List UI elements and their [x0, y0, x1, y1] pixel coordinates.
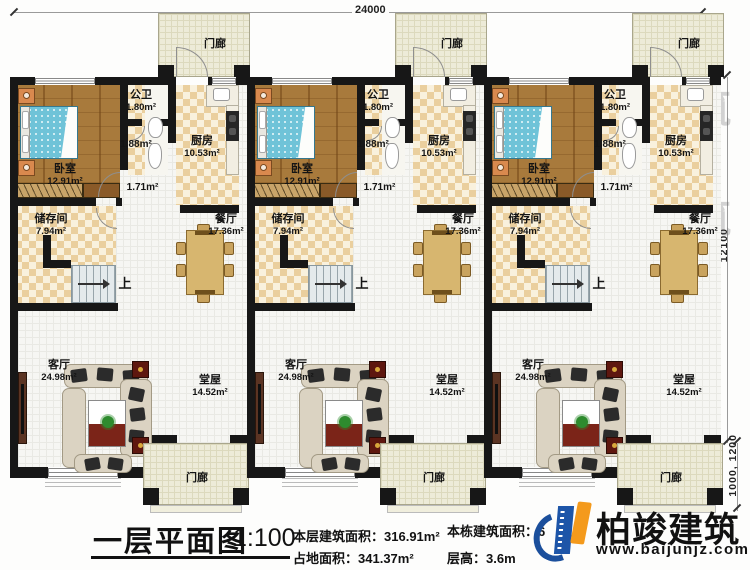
kitchen-window — [212, 78, 236, 84]
kitchen-window — [449, 78, 473, 84]
brand-logo-icon — [536, 500, 594, 566]
dining-chair — [461, 242, 471, 255]
wall-kitchen-left — [642, 77, 650, 143]
coffee-table — [562, 400, 600, 447]
wall-top — [492, 77, 509, 85]
porch-post — [143, 488, 159, 505]
sofa-bench — [311, 454, 369, 473]
tv-cabinet — [255, 372, 264, 444]
wall-storage-bottom — [247, 303, 355, 311]
dining-label: 餐厅17.36m² — [672, 213, 728, 238]
coffee-table — [325, 400, 363, 447]
dining-chair — [650, 264, 660, 277]
entry-steps — [519, 478, 595, 490]
stairs-arrowhead — [577, 279, 584, 289]
tv — [21, 384, 24, 434]
dining-table — [423, 230, 461, 295]
plant — [102, 416, 114, 428]
unit-2: 门廊 — [247, 77, 484, 478]
dimension-right-porch: 1000, 1200 — [727, 434, 739, 497]
bed-sheet — [61, 107, 77, 158]
wall-mainhall-bottom — [389, 435, 414, 443]
floor-area-stat: 本层建筑面积：316.91m² — [293, 526, 440, 545]
wall-kitchen-bottom — [654, 205, 713, 213]
sofa-bench — [548, 454, 606, 473]
kitchen-sink — [450, 88, 467, 101]
bed-sheet — [298, 107, 314, 158]
kitchen-label: 厨房10.53m² — [410, 135, 468, 160]
dining-label: 餐厅17.36m² — [435, 213, 491, 238]
stairs-arrow — [78, 283, 104, 285]
wall-bedroom-bottom — [484, 198, 570, 206]
wall-top — [255, 77, 272, 85]
dimension-top: 24000 — [352, 4, 389, 16]
washbasin — [148, 117, 163, 138]
wall-left — [10, 77, 18, 478]
porch-post — [234, 65, 250, 77]
dining-label: 餐厅17.36m² — [198, 213, 254, 238]
wall-mainhall-bottom — [152, 435, 177, 443]
nightstand — [18, 88, 35, 104]
wall-stub — [590, 198, 596, 206]
hallway-label: 1.71m² — [115, 182, 170, 194]
coffee-table — [88, 400, 126, 447]
wall-bedroom-bottom — [247, 198, 333, 206]
porch-post — [470, 488, 486, 505]
pillow — [496, 135, 503, 153]
kitchen-window — [686, 78, 710, 84]
living-label: 客厅24.98m² — [28, 359, 90, 384]
entry-steps — [45, 478, 121, 490]
wall-top — [710, 77, 721, 85]
sofa-bench — [74, 454, 132, 473]
dining-chair — [698, 264, 708, 277]
wall-top — [569, 77, 650, 85]
kitchen-label: 厨房10.53m² — [173, 135, 231, 160]
dining-chair — [413, 264, 423, 277]
stairs-up-label: 上 — [115, 276, 135, 292]
bathroom-label: 公卫1.80m² — [590, 89, 640, 114]
porch-post — [395, 65, 411, 77]
bedroom-label: 卧室12.91m² — [272, 163, 332, 188]
brand-website: www.baijunjz.com — [596, 541, 749, 558]
hallway-label: 1.71m² — [352, 182, 407, 194]
wall-mainhall-bottom — [230, 435, 247, 443]
mainhall-label: 堂屋14.52m² — [649, 374, 719, 399]
nightstand — [492, 160, 509, 176]
porch-post — [158, 65, 174, 77]
wall-living-bottom — [484, 467, 522, 478]
kitchen-label: 厨房10.53m² — [647, 135, 705, 160]
dining-table — [186, 230, 224, 295]
nightstand — [255, 160, 272, 176]
pillow — [259, 111, 266, 129]
wall-bedroom-bottom — [10, 198, 96, 206]
wall-bath-divider — [365, 119, 379, 126]
stairs-up-label: 上 — [589, 276, 609, 292]
wall-kitchen-bottom — [180, 205, 239, 213]
wall-stub — [116, 198, 122, 206]
wall-top — [236, 77, 247, 85]
pillow — [22, 135, 29, 153]
floor-plan-page: 24000 12100 1000, 1200 柏竣建筑 www.baijunjz… — [0, 0, 750, 570]
wall-top — [95, 77, 176, 85]
title-underline — [91, 556, 290, 559]
wall-stair — [43, 260, 71, 268]
stairs-arrowhead — [340, 279, 347, 289]
porch-post — [708, 65, 724, 77]
dining-chair — [176, 264, 186, 277]
wall-mainhall-bottom — [626, 435, 651, 443]
tv-cabinet — [492, 372, 501, 444]
pillow — [259, 135, 266, 153]
stairs-arrow — [315, 283, 341, 285]
wall-stub — [353, 198, 359, 206]
unit-3: 门廊 — [484, 77, 721, 478]
tv — [495, 384, 498, 434]
dining-chair — [224, 264, 234, 277]
porch-apron — [387, 505, 479, 513]
dining-chair — [413, 242, 423, 255]
nightstand — [18, 160, 35, 176]
wall-storage-bottom — [10, 303, 118, 311]
wall-stair — [517, 260, 545, 268]
bedroom-label: 卧室12.91m² — [509, 163, 569, 188]
bathroom-label: 公卫1.80m² — [116, 89, 166, 114]
pillow — [496, 111, 503, 129]
nightstand — [492, 88, 509, 104]
wall-left — [247, 77, 255, 478]
porch-post — [380, 488, 396, 505]
wall-kitchen-bottom — [417, 205, 476, 213]
bed — [20, 106, 78, 159]
wall-top — [18, 77, 35, 85]
porch-label: 门廊 — [404, 472, 464, 485]
wall-left — [484, 77, 492, 478]
living-label: 客厅24.98m² — [265, 359, 327, 384]
tv — [258, 384, 261, 434]
entry-steps — [282, 478, 358, 490]
bedroom-window — [272, 78, 332, 84]
bed — [494, 106, 552, 159]
wall-living-bottom — [247, 467, 285, 478]
wall-living-bottom — [10, 467, 48, 478]
washarea-label: 1.88m² — [111, 139, 161, 151]
plan-scale: 1:100 — [233, 524, 296, 553]
land-area-stat: 占地面积：341.37m² — [293, 548, 414, 567]
wall-bath-divider — [602, 119, 616, 126]
side-table — [132, 361, 149, 378]
bedroom-label: 卧室12.91m² — [35, 163, 95, 188]
dining-chair — [224, 242, 234, 255]
porch-post — [632, 65, 648, 77]
wall-bath-divider — [128, 119, 142, 126]
washarea-label: 1.88m² — [348, 139, 398, 151]
wall-mainhall-bottom — [704, 435, 721, 443]
dining-table — [660, 230, 698, 295]
wall-top — [332, 77, 413, 85]
storage-label: 储存间7.94m² — [494, 213, 556, 238]
storage-label: 储存间7.94m² — [20, 213, 82, 238]
storage-label: 储存间7.94m² — [257, 213, 319, 238]
bedroom-window — [509, 78, 569, 84]
mainhall-label: 堂屋14.52m² — [175, 374, 245, 399]
plant — [576, 416, 588, 428]
tv-cabinet — [18, 372, 27, 444]
washbasin — [622, 117, 637, 138]
nightstand — [255, 88, 272, 104]
washbasin — [385, 117, 400, 138]
floor-plan: 24000 12100 1000, 1200 柏竣建筑 www.baijunjz… — [0, 0, 750, 570]
porch-label: 门廊 — [167, 472, 227, 485]
porch-post — [233, 488, 249, 505]
wall-storage-bottom — [484, 303, 592, 311]
bed-sheet — [535, 107, 551, 158]
side-table — [606, 361, 623, 378]
floor-height-stat: 层高：3.6m — [447, 548, 516, 567]
building-area-stat: 本栋建筑面积：6 — [447, 521, 545, 540]
washarea-label: 1.88m² — [585, 139, 635, 151]
bathroom-label: 公卫1.80m² — [353, 89, 403, 114]
wall-top — [473, 77, 484, 85]
porch-apron — [150, 505, 242, 513]
plant — [339, 416, 351, 428]
pillow — [22, 111, 29, 129]
dining-chair — [698, 242, 708, 255]
wall-kitchen-left — [168, 77, 176, 143]
porch-label: 门廊 — [659, 38, 719, 51]
wall-stair — [280, 260, 308, 268]
bedroom-window — [35, 78, 95, 84]
porch-label: 门廊 — [422, 38, 482, 51]
stairs-arrowhead — [103, 279, 110, 289]
wall-mainhall-bottom — [467, 435, 484, 443]
stairs-up-label: 上 — [352, 276, 372, 292]
living-label: 客厅24.98m² — [502, 359, 564, 384]
kitchen-sink — [687, 88, 704, 101]
bed — [257, 106, 315, 159]
plan-title: 一层平面图 — [93, 518, 248, 560]
porch-post — [471, 65, 487, 77]
kitchen-sink — [213, 88, 230, 101]
hallway-label: 1.71m² — [589, 182, 644, 194]
porch-label: 门廊 — [641, 472, 701, 485]
unit-1: 门廊 — [10, 77, 247, 478]
dining-chair — [176, 242, 186, 255]
dining-chair — [650, 242, 660, 255]
dining-chair — [461, 264, 471, 277]
mainhall-label: 堂屋14.52m² — [412, 374, 482, 399]
side-table — [369, 361, 386, 378]
wall-kitchen-left — [405, 77, 413, 143]
porch-label: 门廊 — [185, 38, 245, 51]
stairs-arrow — [552, 283, 578, 285]
